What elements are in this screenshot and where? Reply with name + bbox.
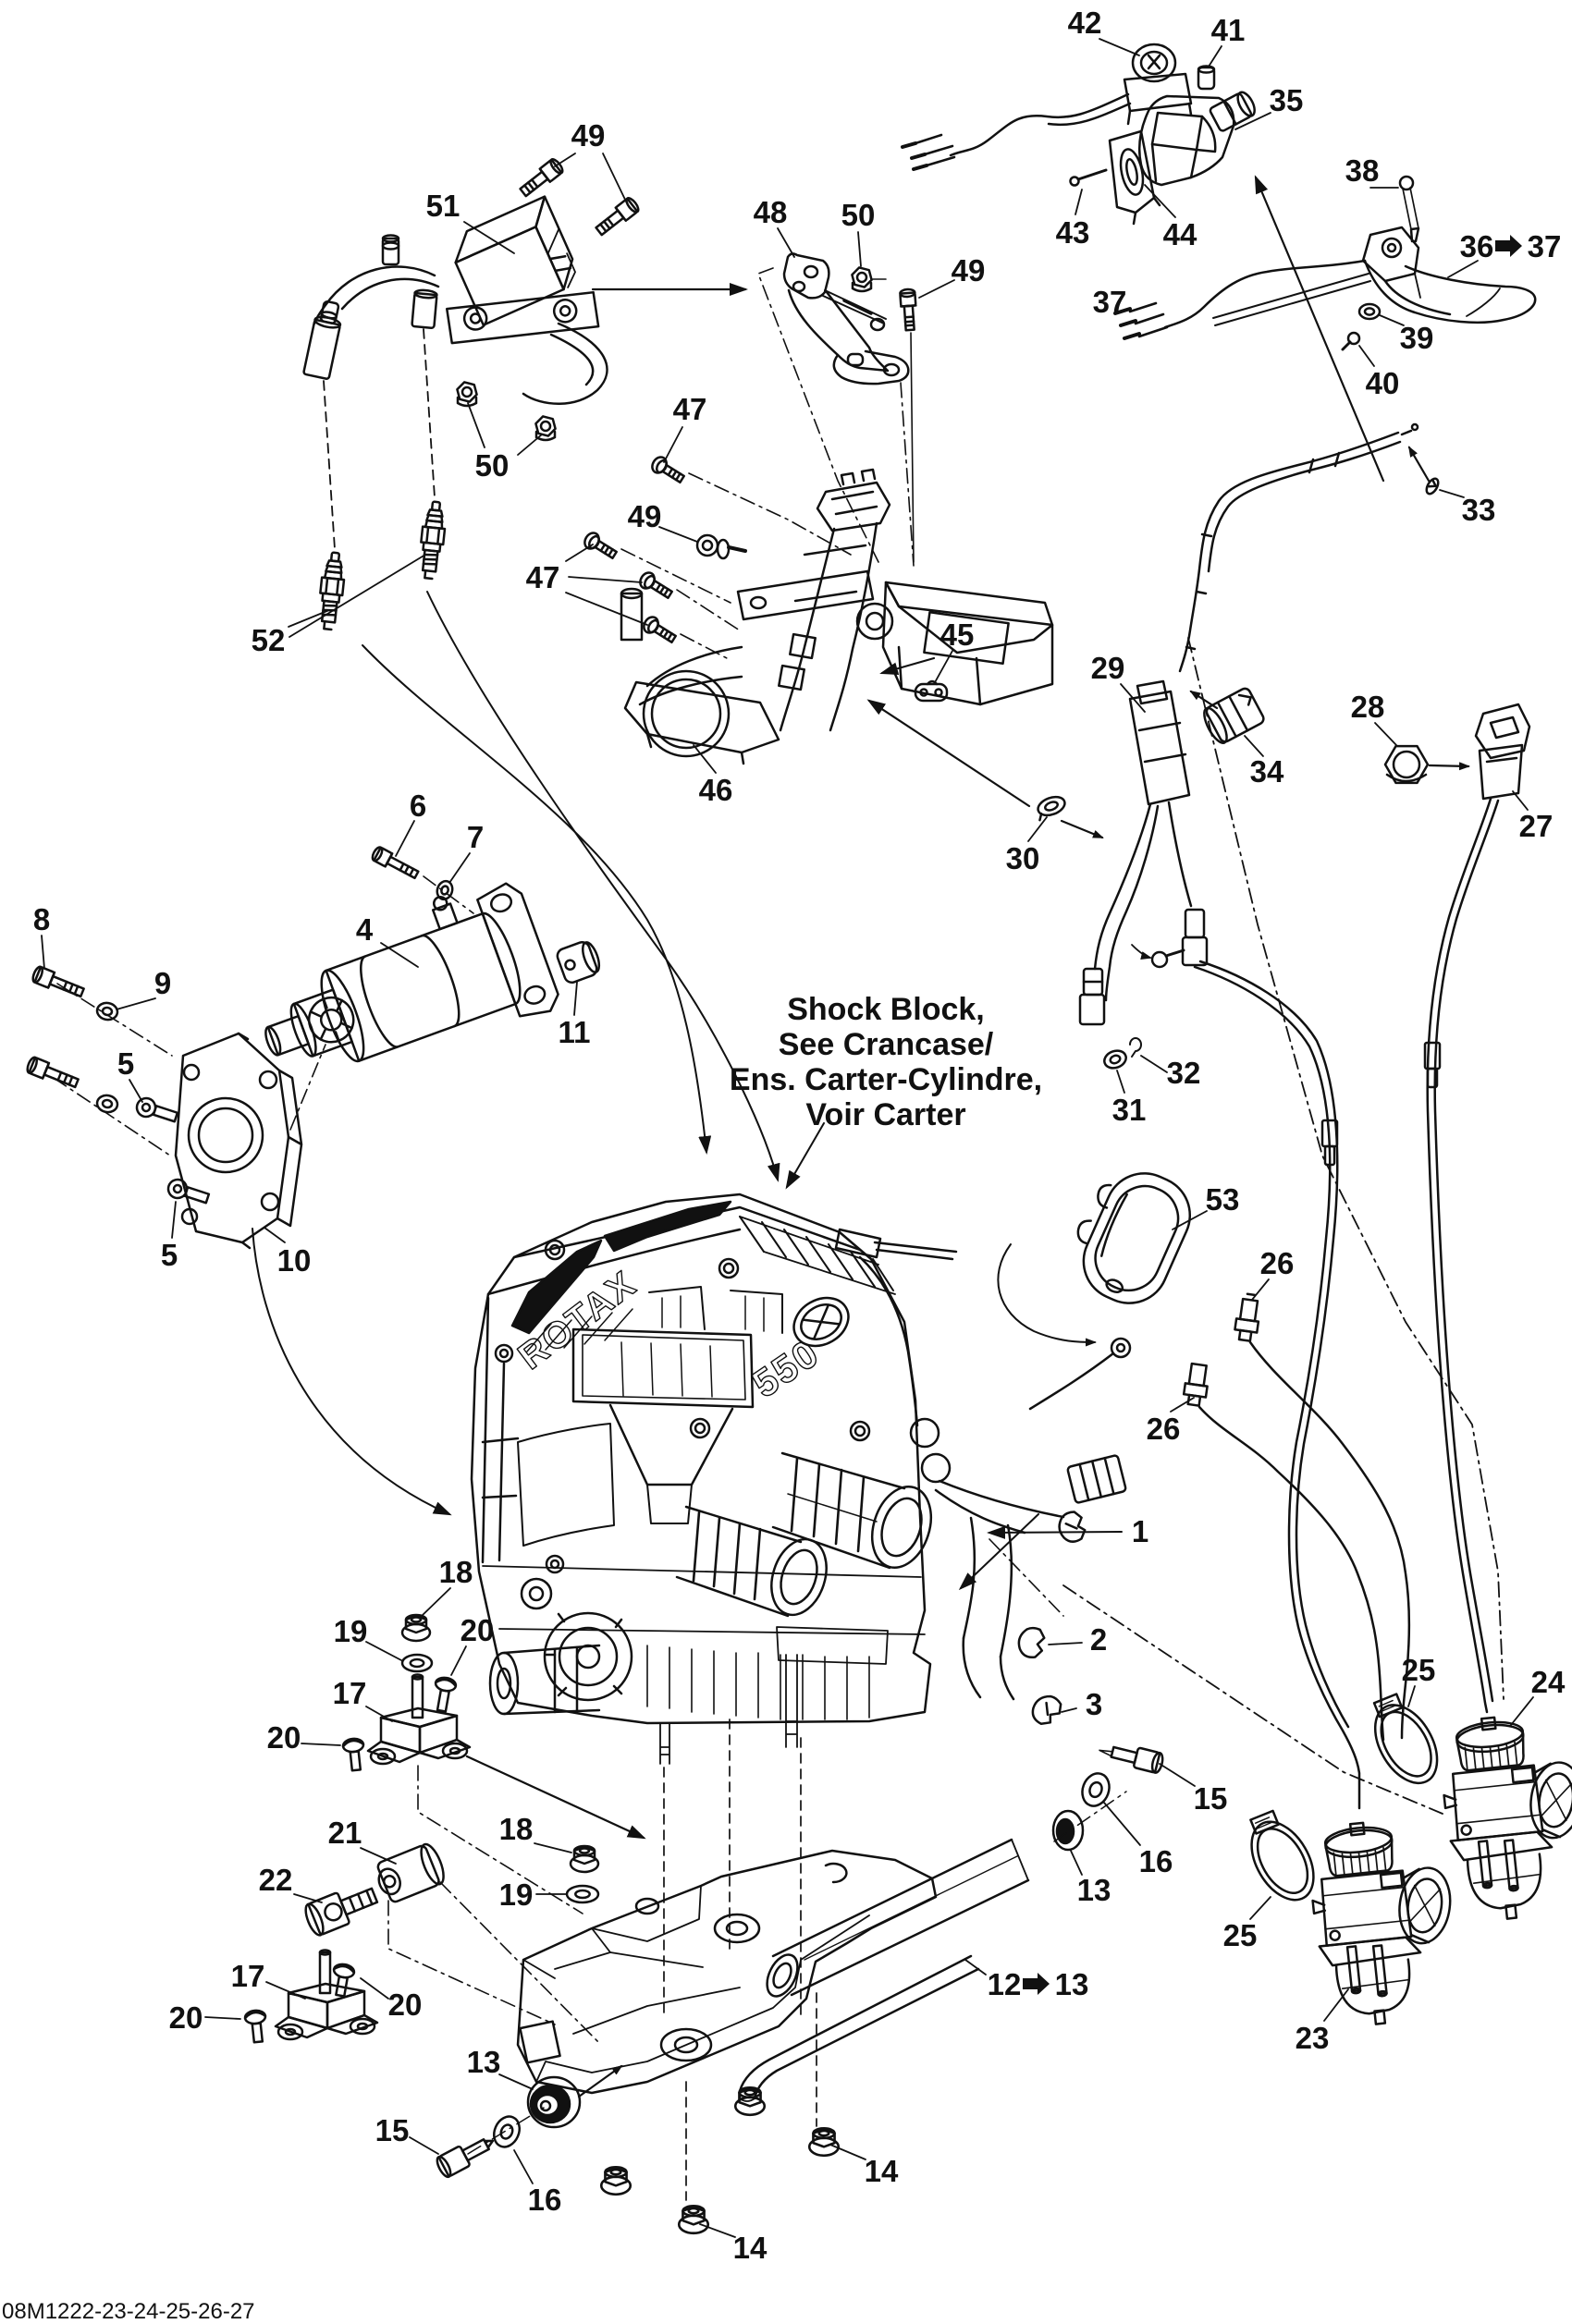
svg-text:39: 39: [1400, 321, 1434, 355]
svg-text:42: 42: [1068, 6, 1102, 40]
svg-text:15: 15: [1194, 1781, 1228, 1816]
svg-text:29: 29: [1091, 651, 1125, 685]
svg-text:Shock Block,: Shock Block,: [787, 992, 985, 1027]
svg-text:30: 30: [1006, 841, 1040, 875]
svg-text:15: 15: [375, 2113, 410, 2147]
svg-text:See Crancase/: See Crancase/: [779, 1027, 994, 1062]
svg-text:18: 18: [499, 1812, 534, 1846]
svg-text:37: 37: [1093, 285, 1127, 319]
svg-text:43: 43: [1056, 215, 1090, 250]
svg-text:11: 11: [559, 1015, 591, 1049]
svg-text:38: 38: [1345, 153, 1380, 188]
svg-text:51: 51: [426, 189, 461, 223]
svg-text:27: 27: [1519, 809, 1554, 843]
svg-text:36: 36: [1460, 229, 1494, 263]
svg-text:31: 31: [1112, 1093, 1147, 1127]
svg-text:10: 10: [277, 1243, 312, 1278]
svg-text:33: 33: [1462, 493, 1496, 527]
svg-text:16: 16: [1139, 1844, 1173, 1878]
svg-text:12: 12: [988, 1967, 1022, 2001]
svg-text:19: 19: [499, 1878, 534, 1912]
svg-text:5: 5: [117, 1046, 134, 1081]
svg-text:550: 550: [744, 1330, 827, 1406]
svg-text:Ens. Carter-Cylindre,: Ens. Carter-Cylindre,: [730, 1062, 1042, 1097]
svg-text:16: 16: [528, 2183, 562, 2217]
svg-text:26: 26: [1147, 1412, 1181, 1446]
svg-text:32: 32: [1167, 1056, 1201, 1090]
svg-text:08M1222-23-24-25-26-27: 08M1222-23-24-25-26-27: [2, 2299, 255, 2324]
svg-text:2: 2: [1090, 1622, 1107, 1657]
svg-text:34: 34: [1250, 754, 1284, 789]
svg-text:17: 17: [333, 1676, 367, 1710]
svg-text:4: 4: [356, 912, 374, 947]
svg-text:20: 20: [169, 2000, 203, 2035]
svg-text:28: 28: [1351, 690, 1385, 724]
svg-text:44: 44: [1163, 217, 1197, 251]
svg-text:26: 26: [1260, 1246, 1295, 1280]
svg-text:45: 45: [940, 618, 975, 652]
svg-text:8: 8: [33, 902, 50, 936]
svg-text:14: 14: [733, 2231, 768, 2265]
svg-text:18: 18: [439, 1555, 473, 1589]
svg-text:50: 50: [841, 198, 876, 232]
svg-text:1: 1: [1132, 1514, 1148, 1548]
svg-text:21: 21: [328, 1816, 362, 1850]
svg-text:17: 17: [231, 1959, 265, 1993]
svg-text:49: 49: [571, 118, 606, 153]
svg-text:49: 49: [628, 499, 662, 533]
svg-text:48: 48: [754, 195, 788, 229]
svg-text:20: 20: [388, 1988, 423, 2022]
svg-text:23: 23: [1296, 2021, 1330, 2055]
svg-text:13: 13: [1055, 1967, 1089, 2001]
svg-text:40: 40: [1366, 366, 1400, 400]
svg-text:25: 25: [1223, 1918, 1258, 1952]
svg-text:6: 6: [410, 789, 426, 823]
svg-text:41: 41: [1211, 13, 1246, 47]
svg-text:14: 14: [865, 2154, 899, 2188]
svg-text:25: 25: [1402, 1653, 1436, 1687]
svg-text:47: 47: [526, 560, 560, 594]
svg-text:20: 20: [461, 1613, 495, 1647]
svg-text:24: 24: [1531, 1665, 1566, 1699]
svg-text:Voir Carter: Voir Carter: [805, 1097, 965, 1132]
svg-text:19: 19: [334, 1614, 368, 1648]
svg-text:52: 52: [252, 623, 286, 657]
svg-text:5: 5: [161, 1238, 178, 1272]
svg-text:37: 37: [1528, 229, 1562, 263]
svg-text:3: 3: [1086, 1687, 1102, 1721]
svg-text:13: 13: [467, 2045, 501, 2079]
svg-text:13: 13: [1077, 1873, 1111, 1907]
svg-text:46: 46: [699, 773, 733, 807]
svg-text:22: 22: [259, 1863, 293, 1897]
svg-text:20: 20: [267, 1720, 301, 1755]
svg-text:50: 50: [475, 448, 510, 483]
svg-text:49: 49: [952, 253, 986, 287]
svg-text:7: 7: [467, 820, 484, 854]
svg-text:9: 9: [154, 966, 171, 1000]
svg-text:35: 35: [1270, 83, 1304, 117]
svg-text:47: 47: [673, 392, 707, 426]
svg-text:53: 53: [1206, 1182, 1240, 1217]
